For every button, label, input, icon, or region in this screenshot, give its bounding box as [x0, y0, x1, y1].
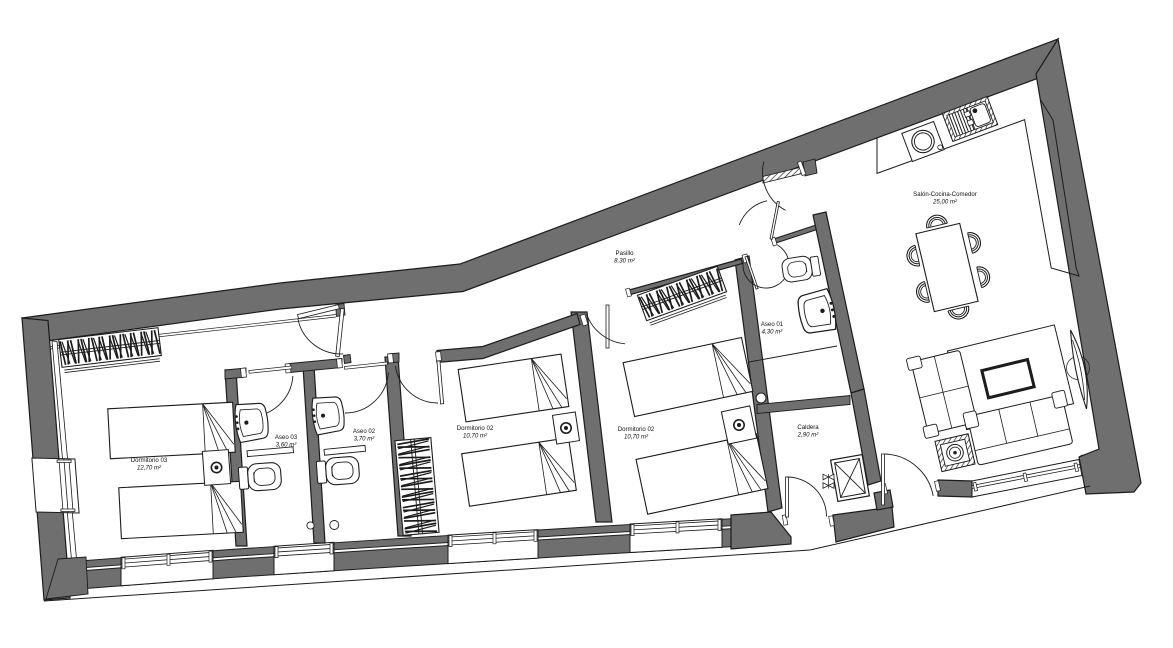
- svg-text:Caldera: Caldera: [797, 424, 819, 431]
- svg-text:Pasillo: Pasillo: [616, 250, 635, 257]
- svg-text:4,30 m²: 4,30 m²: [762, 328, 784, 335]
- svg-text:3,70 m²: 3,70 m²: [354, 435, 376, 442]
- svg-text:3,60 m²: 3,60 m²: [276, 441, 298, 448]
- svg-text:8,30 m²: 8,30 m²: [614, 257, 636, 264]
- svg-text:Dormitorio 02: Dormitorio 02: [618, 426, 655, 433]
- svg-text:Salón-Cocina-Comedor: Salón-Cocina-Comedor: [913, 191, 977, 198]
- svg-text:10,70 m²: 10,70 m²: [463, 432, 488, 439]
- svg-text:Aseo 02: Aseo 02: [353, 428, 376, 435]
- svg-text:Aseo 01: Aseo 01: [761, 321, 784, 328]
- svg-text:Aseo 03: Aseo 03: [275, 434, 298, 441]
- svg-text:Dormitorio 03: Dormitorio 03: [131, 457, 168, 464]
- svg-text:10,70 m²: 10,70 m²: [624, 433, 649, 440]
- svg-text:25,00 m²: 25,00 m²: [932, 198, 958, 205]
- svg-text:2,90 m²: 2,90 m²: [797, 431, 820, 438]
- svg-text:Dormitorio 02: Dormitorio 02: [457, 425, 494, 432]
- svg-text:12,70 m²: 12,70 m²: [137, 464, 162, 471]
